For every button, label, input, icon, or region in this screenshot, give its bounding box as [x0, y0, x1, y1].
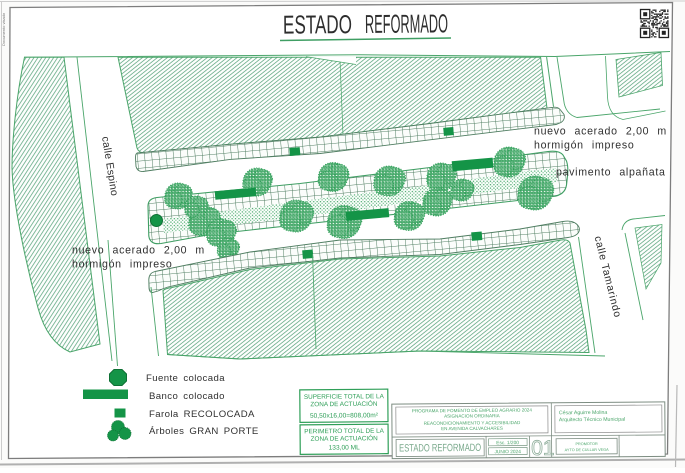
svg-text:PROMOTOR: PROMOTOR	[575, 442, 598, 446]
svg-text:Fuente colocada: Fuente colocada	[146, 373, 225, 384]
svg-text:JUNIO 2024: JUNIO 2024	[494, 449, 521, 455]
svg-text:AYTO DE CULLAR VEGA: AYTO DE CULLAR VEGA	[565, 448, 609, 452]
svg-text:SUPERFICIE TOTAL DE LA: SUPERFICIE TOTAL DE LA	[304, 393, 385, 401]
svg-text:REFORMADO: REFORMADO	[365, 8, 448, 39]
svg-text:EN AVENIDA CALVACHARES: EN AVENIDA CALVACHARES	[441, 426, 503, 431]
svg-text:133,00 ML: 133,00 ML	[329, 444, 361, 451]
svg-text:César Aguirre Molina: César Aguirre Molina	[559, 410, 608, 416]
svg-text:ASIGNACION ORDINARIA: ASIGNACION ORDINARIA	[444, 413, 501, 418]
svg-text:hormigón impreso: hormigón impreso	[534, 140, 635, 152]
svg-text:50,50x16,00=808,00m²: 50,50x16,00=808,00m²	[310, 412, 379, 420]
svg-text:ESTADO: ESTADO	[283, 9, 352, 40]
svg-text:Arquitecto Técnico Municipal: Arquitecto Técnico Municipal	[559, 417, 625, 424]
svg-text:pavimento alpañata: pavimento alpañata	[556, 167, 666, 179]
svg-text:Banco colocado: Banco colocado	[149, 391, 225, 402]
svg-text:nuevo acerado 2,00 m: nuevo acerado 2,00 m	[72, 245, 205, 257]
svg-text:Árboles GRAN PORTE: Árboles GRAN PORTE	[149, 426, 259, 437]
svg-text:nuevo acerado 2,00 m: nuevo acerado 2,00 m	[534, 126, 667, 138]
svg-text:PERIMETRO TOTAL DE LA: PERIMETRO TOTAL DE LA	[304, 428, 384, 436]
svg-text:01: 01	[531, 437, 555, 460]
svg-text:ESTADO REFORMADO: ESTADO REFORMADO	[399, 442, 481, 455]
svg-text:Esc. 1/200: Esc. 1/200	[496, 440, 519, 446]
svg-text:hormigón impreso: hormigón impreso	[72, 259, 173, 271]
svg-text:Farola RECOLOCADA: Farola RECOLOCADA	[149, 409, 255, 420]
